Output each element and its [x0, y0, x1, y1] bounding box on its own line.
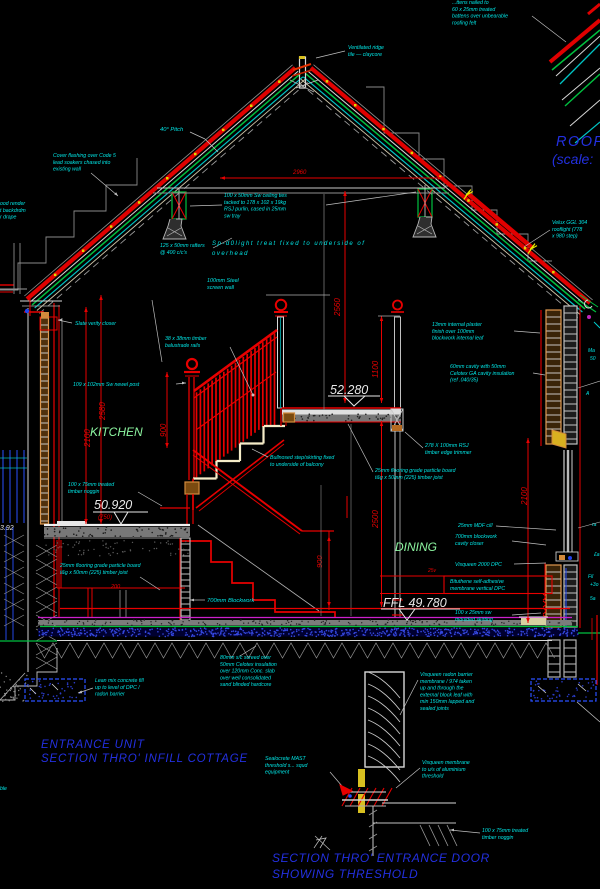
svg-text:£a: £a [593, 552, 600, 558]
svg-text:Ventilated ridge: Ventilated ridge [348, 45, 384, 51]
svg-text:over well consolidated: over well consolidated [220, 675, 272, 681]
svg-text:25mm flooring grade particle b: 25mm flooring grade particle board [59, 563, 142, 569]
svg-text:13mm internal plaster: 13mm internal plaster [432, 322, 482, 328]
svg-text:equipment: equipment [265, 770, 290, 776]
svg-text:Fil: Fil [588, 574, 594, 580]
svg-text:Celotex GA cavity insulation: Celotex GA cavity insulation [450, 371, 515, 377]
svg-text:r drape: r drape [0, 215, 17, 221]
svg-text:100mm Steel: 100mm Steel [207, 278, 240, 284]
svg-text:timber noggin: timber noggin [68, 489, 100, 495]
svg-text:t backdrdm: t backdrdm [0, 208, 26, 214]
svg-text:SECTION THRO' INFILL COTTAG: SECTION THRO' INFILL COTTAGE [41, 753, 248, 765]
svg-text:900: 900 [159, 423, 168, 437]
svg-text:Visqueen radon barrier: Visqueen radon barrier [420, 672, 473, 678]
svg-text:50.920: 50.920 [94, 498, 132, 512]
svg-text:100 x 75mm treated: 100 x 75mm treated [482, 828, 529, 834]
svg-text:timber edge trimmer: timber edge trimmer [425, 450, 472, 456]
svg-text:2580: 2580 [98, 402, 107, 421]
svg-text:1100: 1100 [371, 360, 380, 378]
svg-text:ENTRANCE UNIT: ENTRANCE UNIT [41, 739, 145, 751]
svg-text:over 120mm Conc. slab: over 120mm Conc. slab [220, 669, 275, 675]
svg-text:up to level of DPC /: up to level of DPC / [95, 685, 140, 691]
svg-text:sw tray: sw tray [224, 213, 241, 219]
svg-text:blockwork internal leaf: blockwork internal leaf [432, 336, 484, 342]
svg-text:overhead: overhead [212, 251, 249, 257]
svg-text:tacked to 178 x 102 x 19kg: tacked to 178 x 102 x 19kg [224, 200, 286, 206]
svg-text:Sealocrete MAST: Sealocrete MAST [265, 756, 306, 762]
svg-text:50: 50 [590, 356, 596, 362]
svg-text:3.92: 3.92 [0, 525, 14, 532]
svg-text:radon barrier: radon barrier [95, 692, 125, 698]
svg-text:SECTION THRO' ENTRANCE DOOR: SECTION THRO' ENTRANCE DOOR [272, 851, 490, 865]
svg-text:external block leaf with: external block leaf with [420, 692, 473, 698]
svg-text:Ma: Ma [588, 348, 595, 354]
svg-text:Visqueen 2000 DPC: Visqueen 2000 DPC [455, 562, 502, 568]
svg-text:900: 900 [315, 555, 324, 568]
svg-text:ble: ble [0, 786, 7, 792]
svg-text:(ref .040/35): (ref .040/35) [450, 378, 479, 384]
svg-text:ood render: ood render [0, 201, 25, 207]
svg-text:Bituthene self-adhesive: Bituthene self-adhesive [450, 579, 504, 585]
svg-text:60 x 25mm treated: 60 x 25mm treated [452, 7, 496, 13]
svg-text:balustrade rails: balustrade rails [165, 343, 201, 349]
svg-text:80mm s/c screed over: 80mm s/c screed over [220, 655, 271, 661]
svg-text:2560: 2560 [333, 298, 342, 317]
svg-text:moulded skirting: moulded skirting [455, 617, 493, 623]
svg-text:ROOF: ROOF [556, 134, 600, 150]
svg-text:Visqueen membrane: Visqueen membrane [422, 760, 470, 766]
svg-text:@ 400 c/c's: @ 400 c/c's [160, 250, 187, 256]
svg-text:Slate verity closer: Slate verity closer [75, 321, 116, 327]
svg-text:membrane vertical DPC: membrane vertical DPC [450, 586, 505, 592]
svg-text:tile — claycore: tile — claycore [348, 52, 382, 58]
svg-text:100 x 25mm sw: 100 x 25mm sw [455, 610, 493, 616]
svg-text:2100: 2100 [520, 487, 529, 506]
svg-text:25v: 25v [427, 568, 437, 574]
svg-text:A: A [585, 391, 590, 397]
svg-text:roofing felt: roofing felt [452, 20, 477, 26]
svg-text:rooflight (778: rooflight (778 [552, 227, 582, 233]
svg-text:Sp-d0light treat fixed to: Sp-d0light treat fixed to underside of [212, 241, 365, 247]
svg-text:min 150mm lapped and: min 150mm lapped and [420, 699, 475, 705]
svg-text:FFL 49.780: FFL 49.780 [383, 596, 447, 610]
svg-text:200: 200 [110, 584, 121, 590]
svg-text:Bullnosed step/skirting fixe: Bullnosed step/skirting fixed [270, 455, 335, 461]
svg-text:lead soakers chased into: lead soakers chased into [53, 160, 111, 166]
svg-text:sealed joints: sealed joints [420, 706, 449, 712]
svg-text:109 x 102mm Sw newel post: 109 x 102mm Sw newel post [73, 382, 140, 388]
svg-text:up and through the: up and through the [420, 686, 464, 692]
svg-text:+3o: +3o [590, 582, 599, 588]
svg-text:(scale:: (scale: [552, 151, 593, 167]
svg-text:100 x 75mm treated: 100 x 75mm treated [68, 482, 115, 488]
svg-text:700mm blockwork: 700mm blockwork [455, 534, 497, 540]
svg-text:50mm Celotex insulation: 50mm Celotex insulation [220, 662, 277, 668]
svg-text:...ttens nailed to: ...ttens nailed to [452, 0, 489, 6]
svg-text:to u/s of aluminium: to u/s of aluminium [422, 767, 466, 773]
svg-text:40° Pitch: 40° Pitch [160, 127, 183, 133]
svg-text:60mm cavity with 50mm: 60mm cavity with 50mm [450, 364, 506, 370]
svg-text:threshold: threshold [422, 774, 444, 780]
svg-text:sand blinded hardcore: sand blinded hardcore [220, 682, 271, 688]
svg-text:finish over 100mm: finish over 100mm [432, 329, 475, 335]
svg-text:52.280: 52.280 [330, 383, 368, 397]
svg-text:125 x 50mm rafters: 125 x 50mm rafters [160, 243, 205, 249]
svg-text:700mm Blockwork: 700mm Blockwork [207, 598, 255, 604]
svg-text:x 980 step): x 980 step) [551, 234, 578, 240]
svg-text:(750): (750) [98, 515, 112, 521]
svg-text:DINING: DINING [395, 540, 437, 554]
svg-text:battens over unbearable: battens over unbearable [452, 14, 508, 20]
svg-text:38 x 38mm timber: 38 x 38mm timber [165, 336, 207, 342]
svg-text:RSJ purlin, cased in 25mm: RSJ purlin, cased in 25mm [224, 207, 287, 213]
svg-text:25mm flooring grade particle b: 25mm flooring grade particle board [374, 468, 457, 474]
svg-text:to underside of balcony: to underside of balcony [270, 462, 324, 468]
svg-text:timber noggin: timber noggin [482, 835, 514, 841]
svg-text:threshold s... squd: threshold s... squd [265, 763, 309, 769]
svg-text:SHOWING THRESHOLD: SHOWING THRESHOLD [272, 867, 418, 881]
svg-text:Lean mix concrete fill: Lean mix concrete fill [95, 678, 145, 684]
svg-text:100 x 50mm Sw ceiling ties: 100 x 50mm Sw ceiling ties [224, 193, 287, 199]
svg-text:Velux GGL 304: Velux GGL 304 [552, 220, 587, 226]
svg-text:screen wall: screen wall [207, 285, 235, 291]
svg-text:5a: 5a [590, 596, 596, 602]
svg-text:cavity closer: cavity closer [455, 541, 484, 547]
svg-text:t&g x 50mm (225) timber joist: t&g x 50mm (225) timber joist [375, 475, 443, 481]
svg-text:25mm MDF cill: 25mm MDF cill [457, 523, 493, 529]
svg-text:278 X 100mm RSJ: 278 X 100mm RSJ [424, 443, 469, 449]
svg-text:Cover flashing over Code 5: Cover flashing over Code 5 [53, 153, 116, 159]
svg-text:t&g x 50mm (225) timber joist: t&g x 50mm (225) timber joist [60, 570, 128, 576]
svg-text:KITCHEN: KITCHEN [90, 425, 143, 439]
svg-text:membrane / 974 taken: membrane / 974 taken [420, 679, 472, 685]
svg-text:2960: 2960 [292, 170, 307, 176]
svg-text:2500: 2500 [371, 510, 380, 529]
svg-text:existing wall: existing wall [53, 167, 82, 173]
